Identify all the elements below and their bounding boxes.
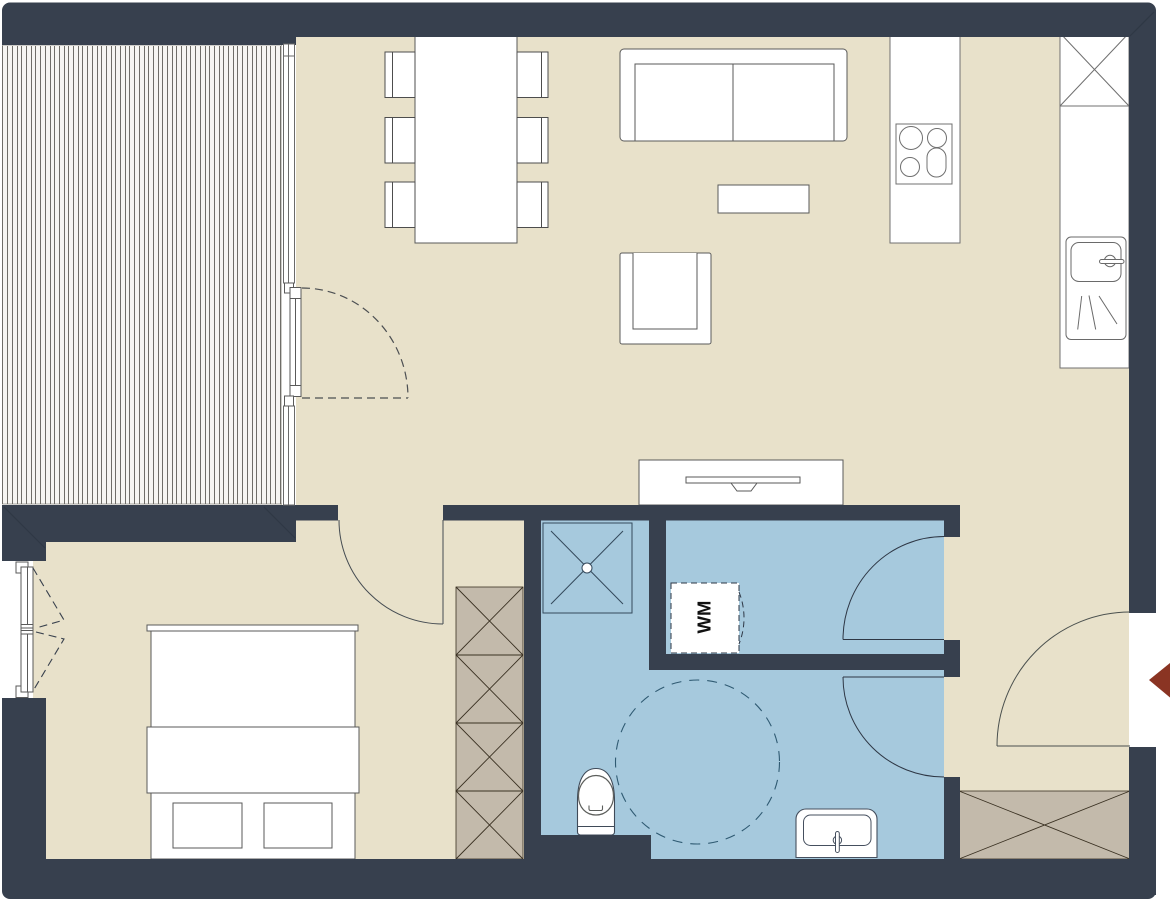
svg-text:WM: WM	[694, 601, 715, 634]
